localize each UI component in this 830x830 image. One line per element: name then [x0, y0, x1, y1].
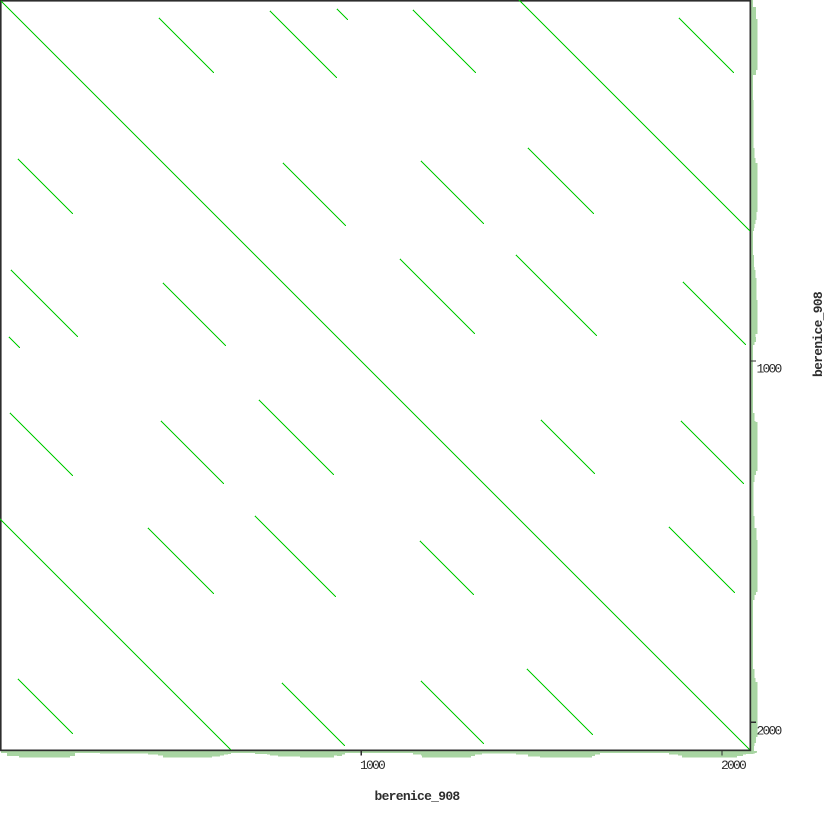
svg-text:berenice_908: berenice_908: [375, 789, 461, 804]
svg-text:1000: 1000: [360, 758, 385, 773]
svg-text:2000: 2000: [757, 723, 782, 738]
svg-text:berenice_908: berenice_908: [811, 291, 826, 377]
svg-text:1000: 1000: [757, 361, 782, 376]
svg-text:2000: 2000: [721, 758, 746, 773]
